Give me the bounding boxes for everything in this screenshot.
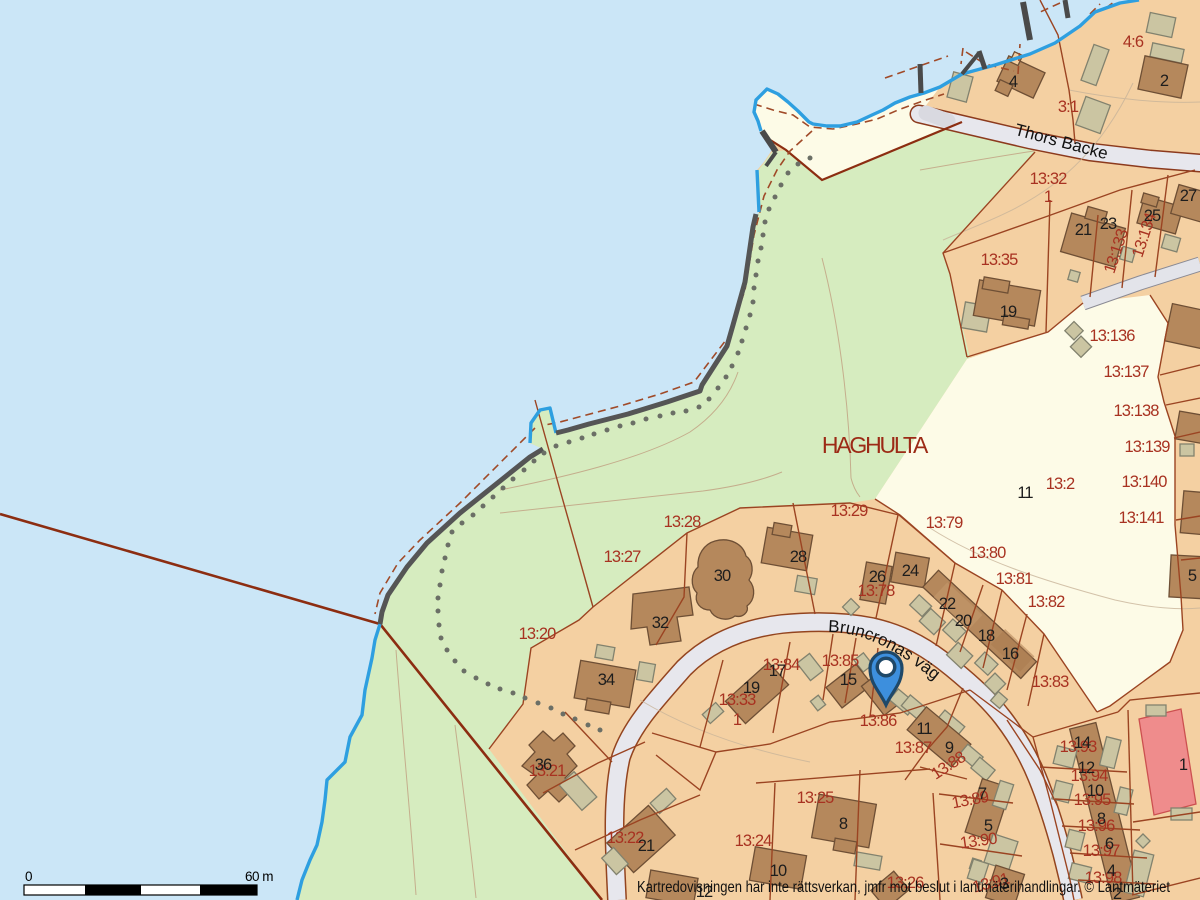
svg-text:21: 21 [638,837,655,855]
svg-text:9: 9 [945,739,954,757]
svg-text:20: 20 [955,612,972,630]
svg-text:16: 16 [1002,645,1019,663]
svg-text:4:6: 4:6 [1123,33,1144,51]
svg-text:13:27: 13:27 [604,548,642,566]
svg-text:13:20: 13:20 [519,625,557,643]
svg-text:25: 25 [1144,207,1161,225]
svg-text:13:35: 13:35 [981,251,1019,269]
svg-text:11: 11 [916,720,932,738]
svg-text:17: 17 [769,662,786,680]
svg-text:22: 22 [939,595,956,613]
svg-text:13:83: 13:83 [1032,673,1070,691]
svg-text:23: 23 [1100,215,1117,233]
svg-text:8: 8 [839,815,848,833]
svg-text:13:140: 13:140 [1121,473,1167,491]
svg-text:13:28: 13:28 [664,513,702,531]
svg-text:18: 18 [978,627,995,645]
svg-text:13:97: 13:97 [1083,842,1121,860]
svg-text:13:25: 13:25 [797,789,835,807]
svg-text:15: 15 [840,671,857,689]
svg-text:13:139: 13:139 [1124,438,1170,456]
svg-text:6: 6 [1105,835,1114,853]
svg-text:11: 11 [1017,484,1033,502]
svg-text:13:82: 13:82 [1028,593,1066,611]
svg-text:28: 28 [790,548,807,566]
svg-text:12: 12 [1078,759,1095,777]
svg-text:13:86: 13:86 [860,712,898,730]
svg-text:13:80: 13:80 [969,544,1007,562]
svg-text:13:29: 13:29 [831,502,869,520]
svg-text:21: 21 [1075,221,1092,239]
svg-text:19: 19 [743,679,760,697]
svg-text:0: 0 [25,869,32,884]
svg-text:1: 1 [733,711,742,729]
svg-text:5: 5 [1188,567,1197,585]
svg-text:24: 24 [902,562,919,580]
svg-text:13:81: 13:81 [996,570,1034,588]
svg-text:8: 8 [1097,810,1106,828]
svg-text:36: 36 [535,756,552,774]
svg-text:30: 30 [714,567,731,585]
svg-text:3:1: 3:1 [1058,98,1079,116]
svg-text:13:2: 13:2 [1046,475,1075,493]
svg-text:13:87: 13:87 [895,739,933,757]
svg-text:7: 7 [978,785,987,803]
svg-text:1: 1 [1044,188,1053,206]
svg-text:10: 10 [1087,782,1104,800]
svg-text:13:85: 13:85 [822,652,860,670]
svg-text:27: 27 [1180,187,1197,205]
svg-text:14: 14 [1074,734,1091,752]
svg-text:4: 4 [1009,73,1018,91]
svg-text:13:79: 13:79 [926,514,964,532]
svg-text:13:137: 13:137 [1103,363,1149,381]
svg-text:60 m: 60 m [245,869,273,884]
svg-text:4: 4 [1107,862,1116,880]
svg-text:26: 26 [869,568,886,586]
svg-text:13:138: 13:138 [1113,402,1159,420]
svg-text:19: 19 [1000,303,1017,321]
svg-text:5: 5 [984,817,993,835]
svg-text:10: 10 [770,862,787,880]
svg-text:13:136: 13:136 [1089,327,1135,345]
svg-text:13:32: 13:32 [1030,170,1068,188]
svg-text:Kartredovisningen har inte rät: Kartredovisningen har inte rättsverkan, … [637,879,1170,896]
svg-text:32: 32 [652,614,669,632]
svg-text:1: 1 [1179,756,1188,774]
svg-text:2: 2 [1160,72,1169,90]
svg-text:HAGHULTA: HAGHULTA [822,432,929,458]
svg-text:34: 34 [598,671,615,689]
svg-text:13:24: 13:24 [735,832,773,850]
svg-text:13:141: 13:141 [1118,509,1164,527]
